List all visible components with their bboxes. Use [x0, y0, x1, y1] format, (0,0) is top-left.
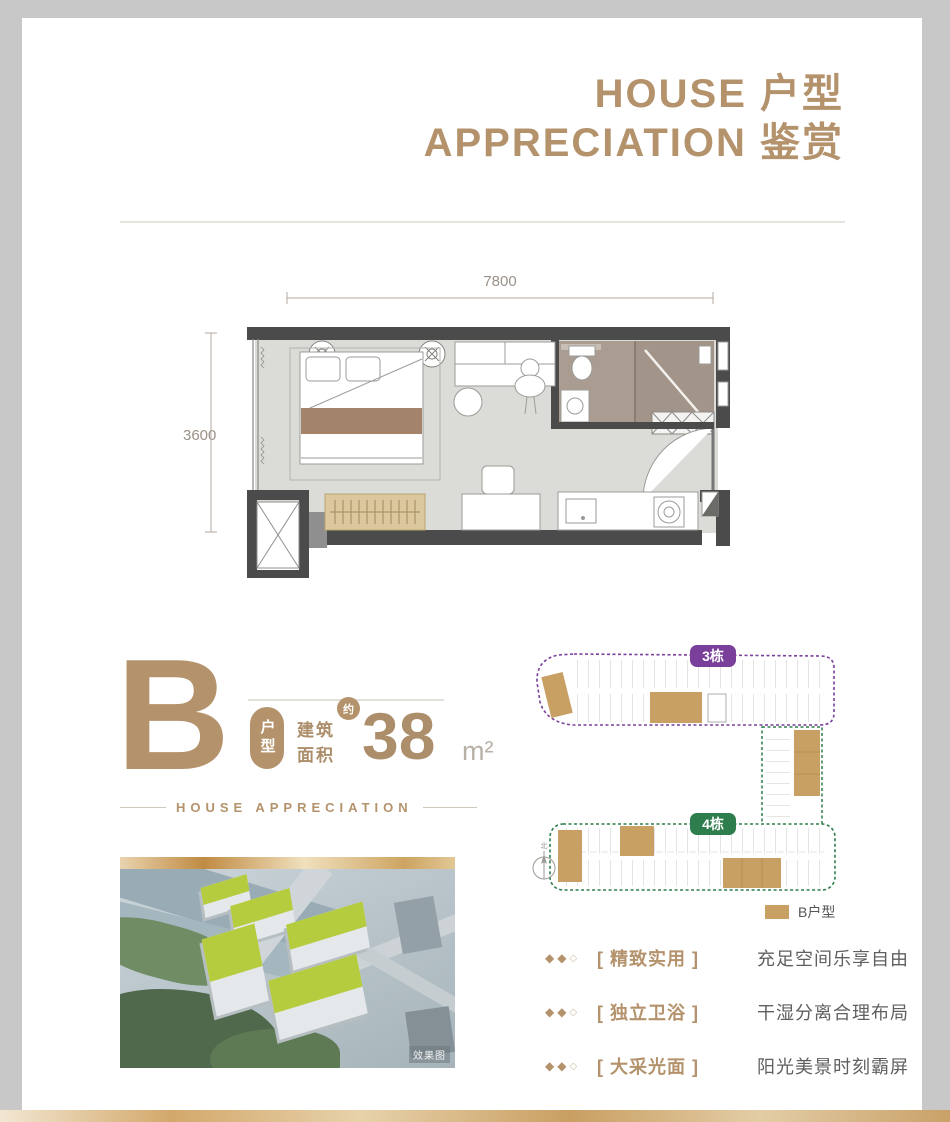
brochure-page: HOUSE 户型 APPRECIATION 鉴赏 7800 3600: [0, 0, 950, 1122]
feature-desc: 干湿分离合理布局: [757, 999, 909, 1025]
building-4: 4栋: [550, 813, 835, 890]
area-value: 38: [362, 697, 435, 776]
subtitle-line-right: [423, 807, 477, 808]
area-label: 建筑 面积: [297, 719, 335, 768]
feature-row-3: ◆◆◇ [ 大采光面 ] 阳光美景时刻霸屏: [545, 1054, 909, 1078]
building-3: 3栋: [537, 645, 834, 725]
feature-desc: 充足空间乐享自由: [757, 945, 909, 971]
legend-swatch: [765, 905, 789, 919]
building3-badge: 3栋: [702, 648, 724, 664]
diamond-bullets-icon: ◆◆◇: [545, 1005, 597, 1019]
floor-plan: 7800 3600: [165, 262, 740, 587]
area-label-line2: 面积: [297, 744, 335, 769]
header-divider: [120, 221, 845, 223]
feature-desc: 阳光美景时刻霸屏: [757, 1053, 909, 1079]
feature-title: [ 独立卫浴 ]: [597, 999, 757, 1025]
page-title: HOUSE 户型 APPRECIATION 鉴赏: [424, 70, 844, 168]
site-plan: 3栋 4栋 北: [522, 640, 942, 898]
subtitle-text: HOUSE APPRECIATION: [176, 800, 413, 815]
subtitle-row: HOUSE APPRECIATION: [120, 800, 477, 815]
aerial-render-image: 效果图: [120, 857, 455, 1068]
diamond-bullets-icon: ◆◆◇: [545, 951, 597, 965]
gray-building: [394, 896, 442, 954]
unit-type-badge: 户型: [250, 707, 284, 769]
legend-label: B户型: [798, 902, 835, 922]
entry-mat: [702, 492, 718, 516]
feature-title: [ 精致实用 ]: [597, 945, 757, 971]
legend-b-unit: B户型: [765, 902, 835, 922]
wardrobe: [325, 494, 425, 530]
bottom-gold-bar: [0, 1110, 950, 1122]
bed: [290, 348, 440, 480]
unit-letter: B: [116, 636, 230, 794]
subtitle-line-left: [120, 807, 166, 808]
diamond-bullets-icon: ◆◆◇: [545, 1059, 597, 1073]
compass-label: 北: [541, 842, 548, 850]
area-label-line1: 建筑: [297, 719, 335, 744]
area-unit: m²: [462, 736, 493, 767]
round-table: [454, 388, 482, 416]
kitchen-counter: [558, 492, 698, 530]
dim-width-label: 7800: [483, 273, 516, 290]
render-photo: 效果图: [120, 869, 455, 1068]
building-4-wing: [762, 727, 822, 827]
building4-badge: 4栋: [702, 816, 724, 832]
render-watermark: 效果图: [409, 1046, 450, 1063]
title-line2: APPRECIATION 鉴赏: [424, 119, 844, 168]
feature-row-1: ◆◆◇ [ 精致实用 ] 充足空间乐享自由: [545, 946, 909, 970]
title-line1: HOUSE 户型: [424, 70, 844, 119]
feature-title: [ 大采光面 ]: [597, 1053, 757, 1079]
feature-row-2: ◆◆◇ [ 独立卫浴 ] 干湿分离合理布局: [545, 1000, 909, 1024]
feature-list: ◆◆◇ [ 精致实用 ] 充足空间乐享自由 ◆◆◇ [ 独立卫浴 ] 干湿分离合…: [545, 946, 909, 1108]
dim-width-line: [287, 292, 713, 304]
gold-accent-bar: [120, 857, 455, 869]
approx-badge: 约: [337, 697, 360, 720]
